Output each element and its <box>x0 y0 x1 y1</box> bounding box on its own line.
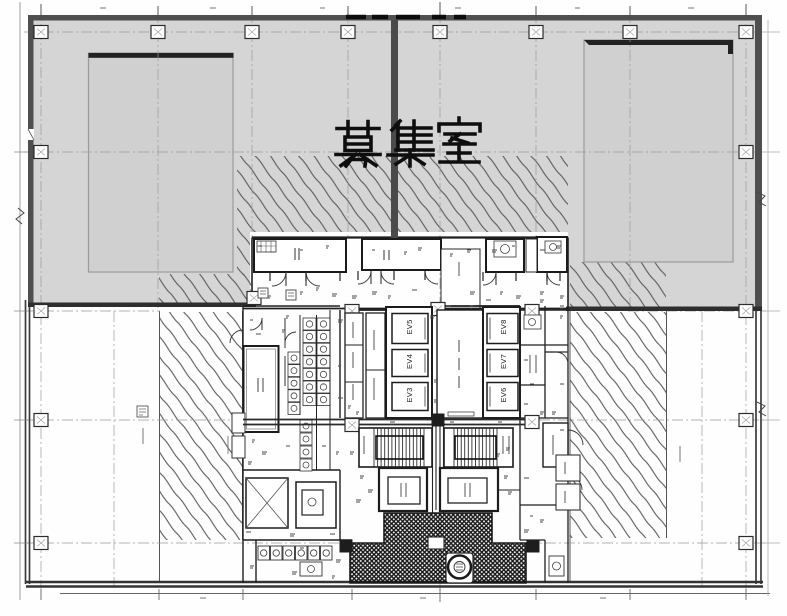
svg-text:EV4: EV4 <box>405 354 414 369</box>
svg-text:EV8: EV8 <box>499 319 508 334</box>
svg-text:EV3: EV3 <box>405 387 414 402</box>
svg-text:EV6: EV6 <box>499 387 508 402</box>
svg-text:EV7: EV7 <box>499 354 508 369</box>
svg-text:EV5: EV5 <box>405 319 414 334</box>
